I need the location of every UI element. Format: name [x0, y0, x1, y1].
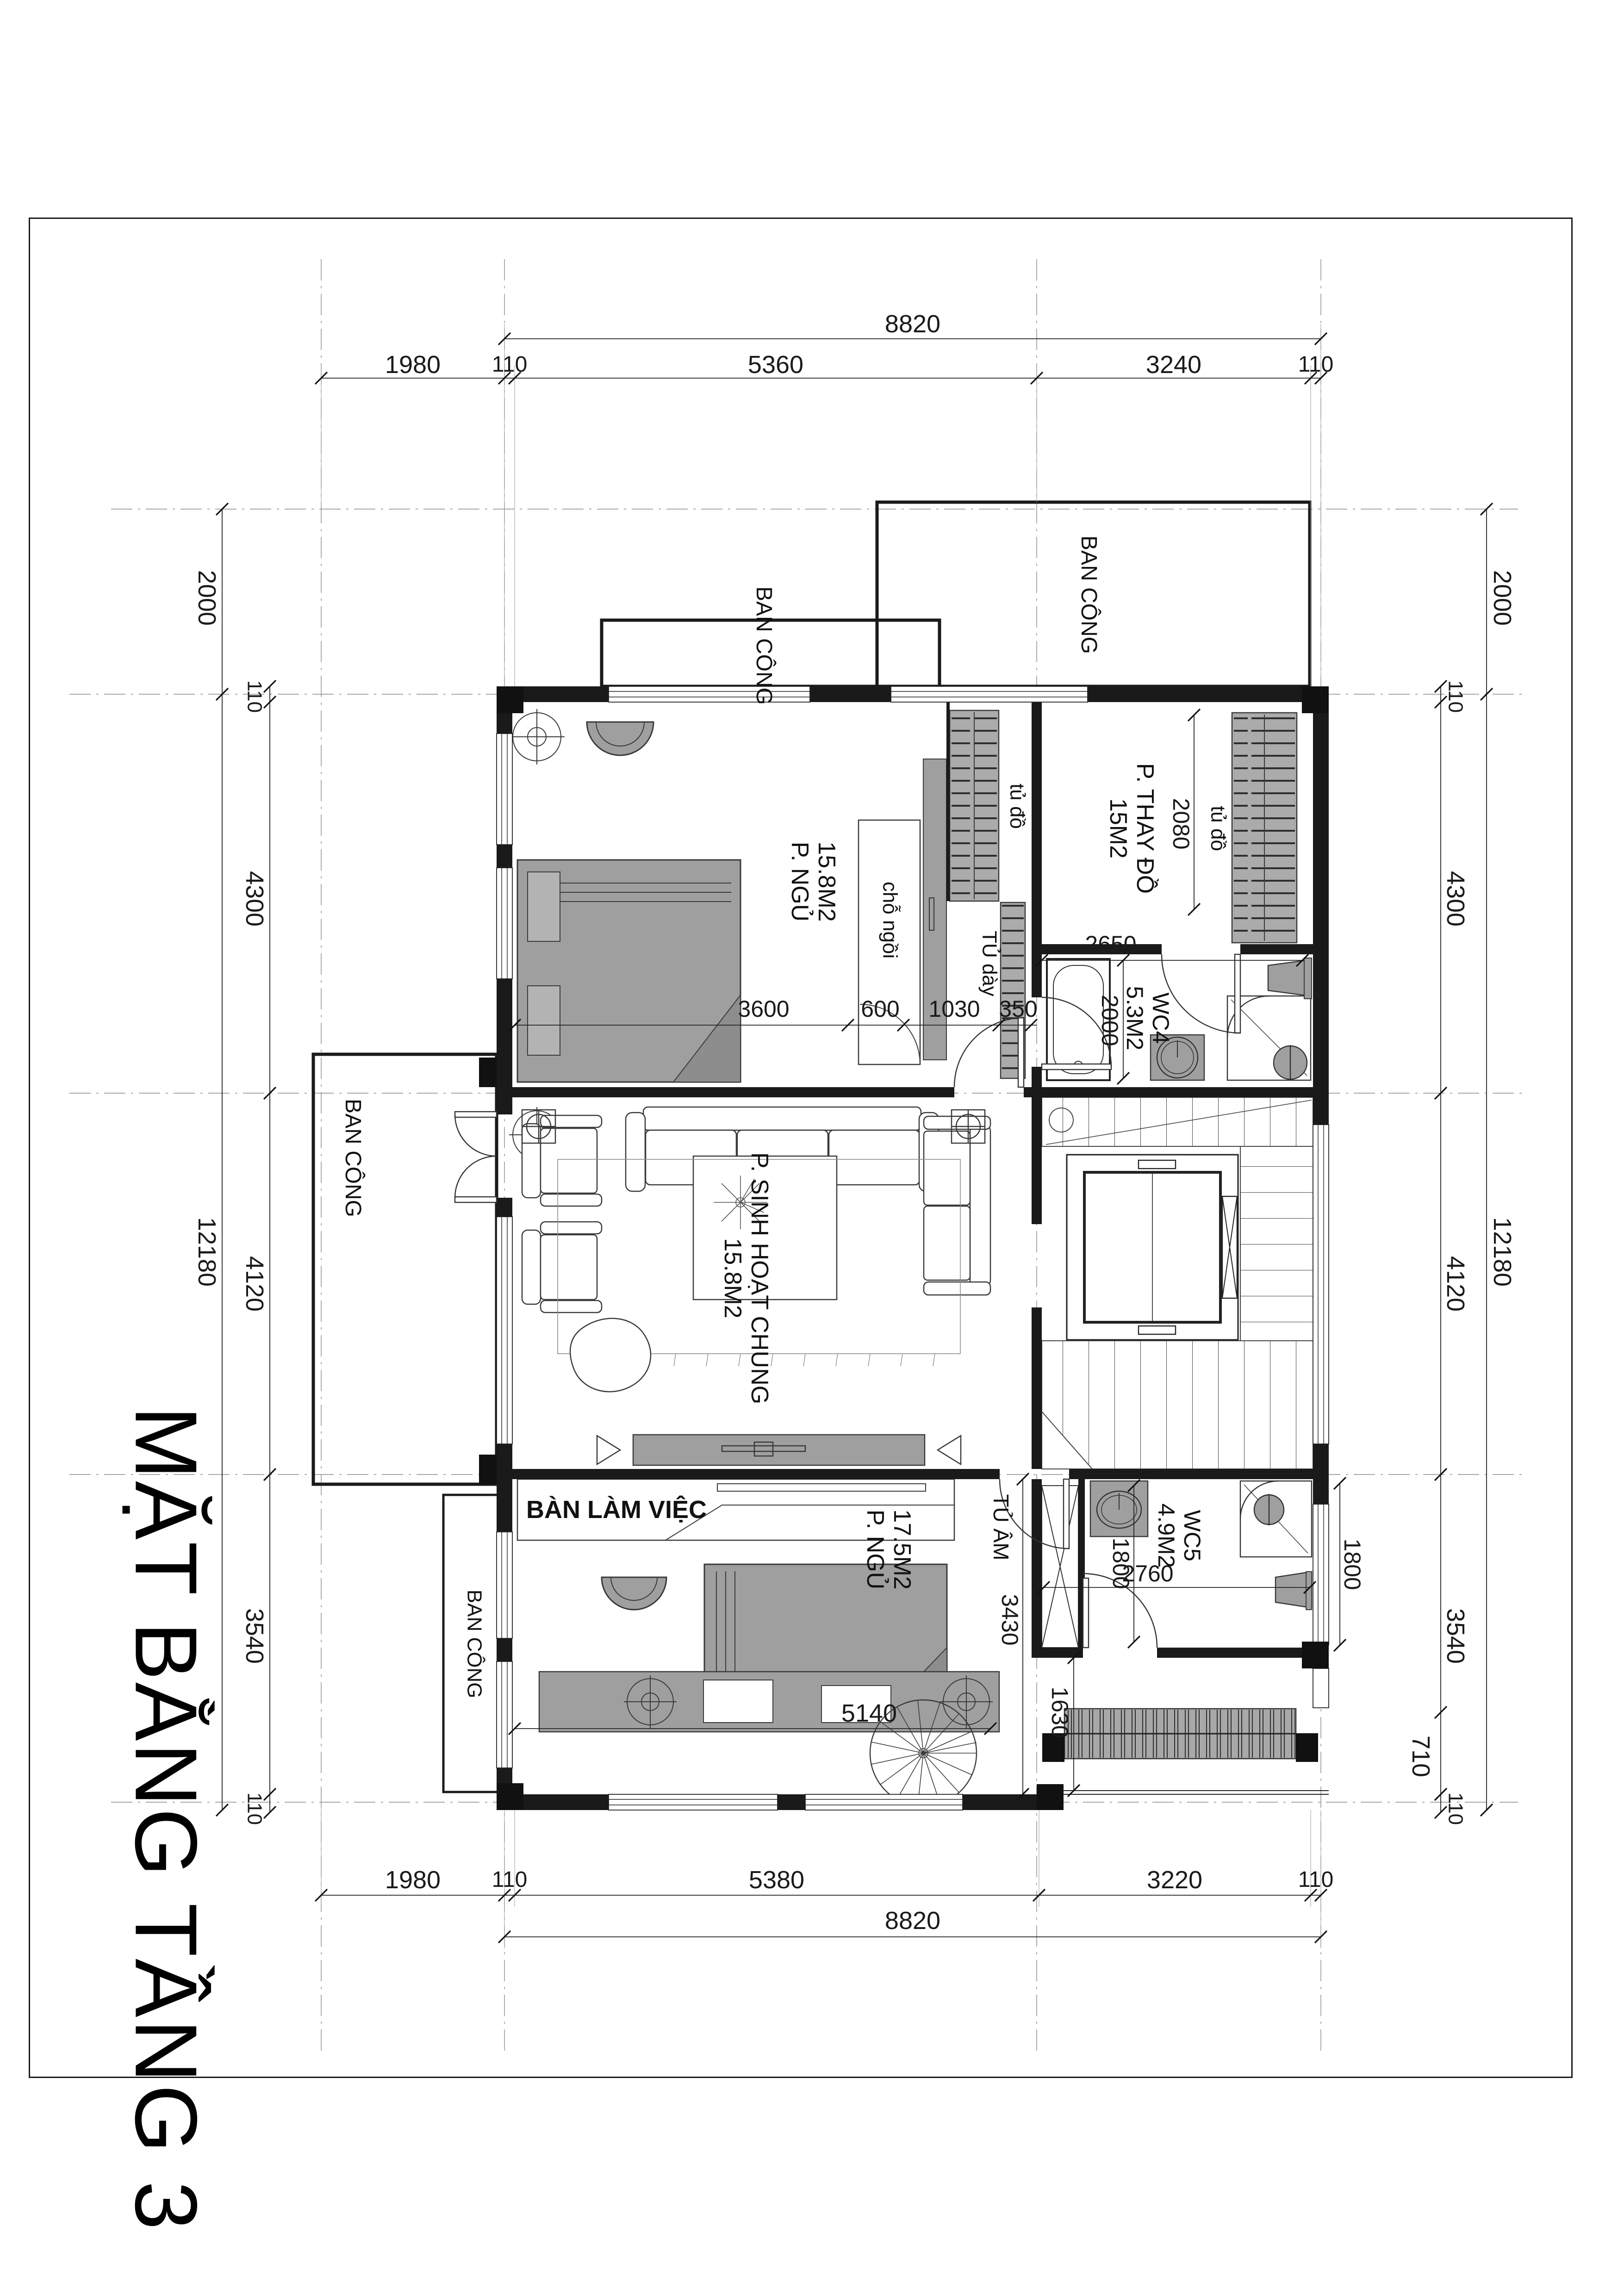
dim-bottom-seg: 3220	[1147, 1866, 1202, 1894]
dim-bedroom-bottom-width: 5140	[841, 1699, 897, 1727]
dim-bedroom-bottom-depth: 3430	[997, 1594, 1023, 1645]
bedroom-bottom-furniture	[517, 1479, 999, 1806]
room-label-wc4: WC4 5.3M2	[1122, 986, 1174, 1051]
dim-bedroom-top: 350	[999, 996, 1037, 1022]
built-in-cabinet-label: TỦ ÂM	[989, 1494, 1013, 1560]
dim-right-outer: 12180	[1488, 1217, 1516, 1287]
dim-top-seg: 5360	[748, 351, 803, 379]
dim-right-inner: 4120	[1442, 1256, 1469, 1312]
seat-label: chỗ ngồi	[878, 882, 901, 958]
dim-bedroom-top: 3600	[738, 996, 789, 1022]
room-name: P. THAY ĐỒ	[1132, 763, 1158, 894]
dim-rail-offset: 710	[1407, 1736, 1435, 1777]
dim-right-outer: 2000	[1488, 570, 1516, 626]
room-label-bedroom-top: 15.8M2 P. NGỦ	[786, 841, 840, 921]
elevator-icon	[1067, 1155, 1238, 1340]
room-name: WC4	[1148, 986, 1174, 1051]
room-name: P. NGỦ	[862, 1509, 889, 1589]
dim-right-inner: 4300	[1442, 871, 1469, 927]
room-name: P. SINH HOẠT CHUNG	[746, 1152, 773, 1404]
dim-left-inner: 110	[243, 680, 266, 713]
room-label-dressing: P. THAY ĐỒ 15M2	[1105, 763, 1158, 894]
room-area: 17.5M2	[889, 1509, 915, 1589]
room-label-bedroom-bottom: 17.5M2 P. NGỦ	[862, 1509, 915, 1589]
sheet-title: MẶT BẰNG TẦNG 3	[117, 1406, 215, 2232]
beanbag-icon	[570, 1319, 651, 1392]
wardrobe-icon	[950, 710, 999, 901]
room-area: 15M2	[1105, 763, 1132, 894]
dim-void-depth: 1630	[1047, 1686, 1073, 1738]
balcony-label-top-right: BAN CÔNG	[1076, 535, 1101, 654]
toilet-icon	[1268, 960, 1310, 996]
balcony-label-bottom-left: BAN CÔNG	[463, 1590, 485, 1699]
dim-right-inner: 110	[1444, 680, 1467, 713]
dim-bottom-seg: 110	[1298, 1867, 1334, 1892]
dim-left-inner: 4300	[241, 871, 268, 927]
dim-left-inner: 3540	[241, 1608, 268, 1664]
dim-bottom-seg: 110	[492, 1867, 528, 1892]
balcony-label-mid-left: BAN CÔNG	[340, 1099, 365, 1217]
room-area: 15.8M2	[813, 841, 840, 921]
wardrobe-icon	[1232, 713, 1297, 943]
balcony-label-top-left: BAN CÔNG	[751, 586, 776, 705]
wardrobe-label-1: tủ đồ	[1006, 784, 1028, 829]
room-name: P. NGỦ	[786, 841, 813, 921]
dim-bottom-seg: 5380	[749, 1866, 804, 1894]
cabinet-350-label: TỦ dày	[978, 931, 1001, 996]
sofa-icon	[643, 1107, 921, 1130]
dim-top-seg: 110	[1298, 352, 1334, 377]
stairs-icon	[1042, 1097, 1313, 1469]
wardrobe-label-2: tủ đồ	[1207, 806, 1229, 851]
room-label-wc5: WC5 4.9M2	[1153, 1504, 1205, 1568]
dim-wc4-width: 2650	[1085, 931, 1136, 957]
dim-wardrobe-depth: 2080	[1168, 798, 1194, 849]
wc4-fixtures	[1047, 958, 1312, 1080]
pillow-icon	[528, 986, 560, 1055]
room-name: WC5	[1179, 1504, 1205, 1568]
floor-plan-drawing	[0, 0, 1624, 2296]
dim-top-seg: 110	[492, 352, 528, 377]
dim-wc4-depth: 2000	[1097, 995, 1123, 1046]
dim-left-inner: 110	[243, 1792, 266, 1825]
room-area: 5.3M2	[1122, 986, 1148, 1051]
railing	[1042, 1709, 1329, 1794]
bracket-icon	[597, 1436, 620, 1464]
double-door-balcony	[455, 1112, 497, 1202]
dim-left-inner: 4120	[241, 1256, 268, 1312]
armchair-icon	[522, 1115, 602, 1206]
tv-shelf-icon	[633, 1435, 925, 1465]
pillow-icon	[528, 872, 560, 941]
room-area: 4.9M2	[1153, 1504, 1179, 1568]
dim-top-seg: 1980	[385, 351, 441, 379]
dim-wc5-right: 1800	[1339, 1538, 1365, 1590]
dim-left-outer: 2000	[193, 570, 221, 626]
dim-bottom-overall: 8820	[885, 1907, 940, 1935]
desk-label: BÀN LÀM VIỆC	[526, 1496, 707, 1524]
dim-left-outer: 12180	[193, 1217, 221, 1287]
floor-plan-page: MẶT BẰNG TẦNG 3 8820 1980 110 5360 3240 …	[0, 0, 1624, 2296]
dim-bedroom-top: 600	[861, 996, 899, 1022]
shower-icon	[1240, 1481, 1312, 1557]
dim-top-seg: 3240	[1146, 351, 1201, 379]
dim-bedroom-top: 1030	[928, 996, 980, 1022]
dim-right-inner: 110	[1444, 1792, 1467, 1825]
dim-right-inner: 3540	[1442, 1608, 1469, 1664]
dim-bottom-seg: 1980	[385, 1866, 441, 1894]
built-in-closet-icon	[1042, 1486, 1078, 1648]
dim-top-overall: 8820	[885, 310, 940, 338]
room-label-living: P. SINH HOẠT CHUNG 15.8M2	[719, 1152, 773, 1404]
bracket-icon	[938, 1436, 961, 1464]
room-area: 15.8M2	[719, 1152, 746, 1404]
armchair-icon	[522, 1222, 602, 1313]
